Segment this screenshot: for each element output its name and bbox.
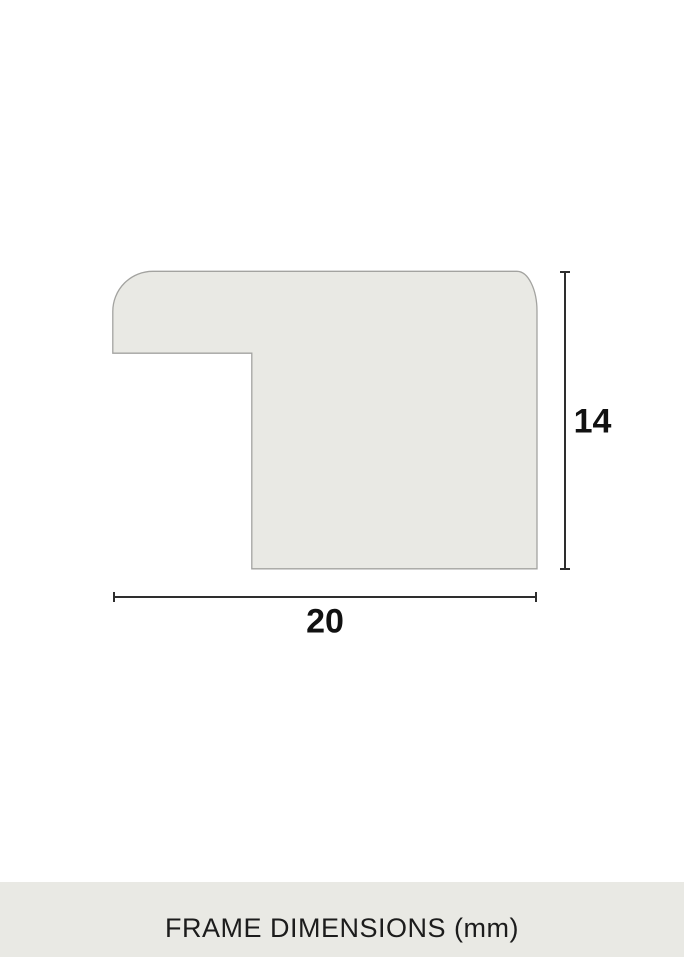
svg-text:20: 20 — [306, 603, 344, 641]
svg-text:14: 14 — [574, 403, 612, 441]
